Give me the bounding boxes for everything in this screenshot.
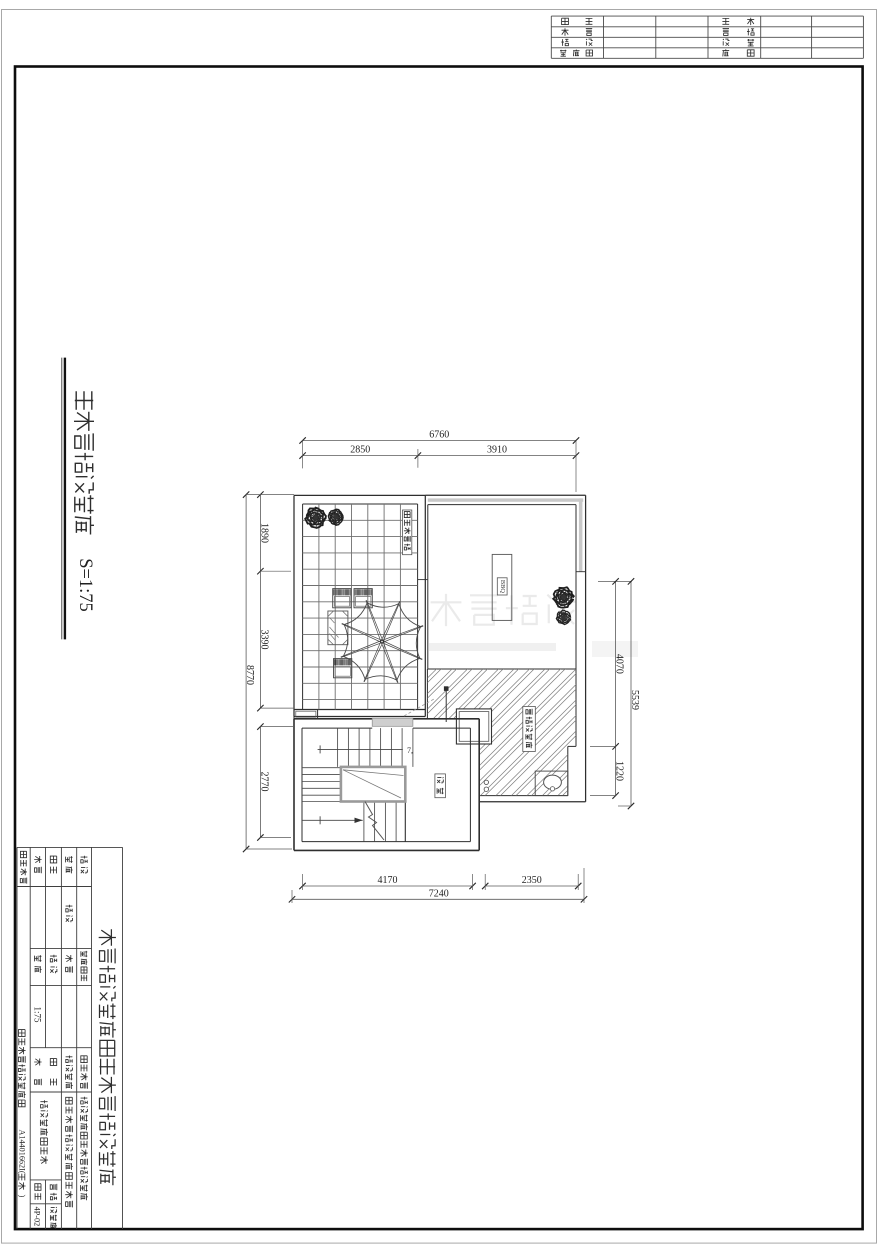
svg-text:4P-02: 4P-02: [33, 1207, 42, 1227]
svg-text:1220: 1220: [614, 761, 625, 781]
svg-text:7,: 7,: [407, 746, 413, 755]
svg-text:5539: 5539: [629, 690, 640, 710]
svg-text:): ): [17, 1195, 26, 1198]
svg-text:3910: 3910: [487, 445, 507, 456]
svg-text:1:75: 1:75: [32, 1006, 42, 1023]
svg-text:1890: 1890: [258, 523, 269, 543]
svg-text:2770: 2770: [258, 772, 269, 792]
svg-text:7240: 7240: [429, 888, 449, 899]
svg-text:8770: 8770: [244, 665, 255, 685]
svg-text:2350: 2350: [522, 875, 542, 886]
svg-text:BBQ: BBQ: [499, 580, 506, 593]
svg-text:4170: 4170: [378, 875, 398, 886]
svg-text:2850: 2850: [350, 445, 370, 456]
svg-text:3390: 3390: [258, 630, 269, 650]
svg-text:6760: 6760: [429, 430, 449, 441]
svg-text:S=1:75: S=1:75: [75, 558, 95, 612]
svg-text:A14401662I(: A14401662I(: [17, 1129, 26, 1173]
svg-text:4070: 4070: [614, 654, 625, 674]
